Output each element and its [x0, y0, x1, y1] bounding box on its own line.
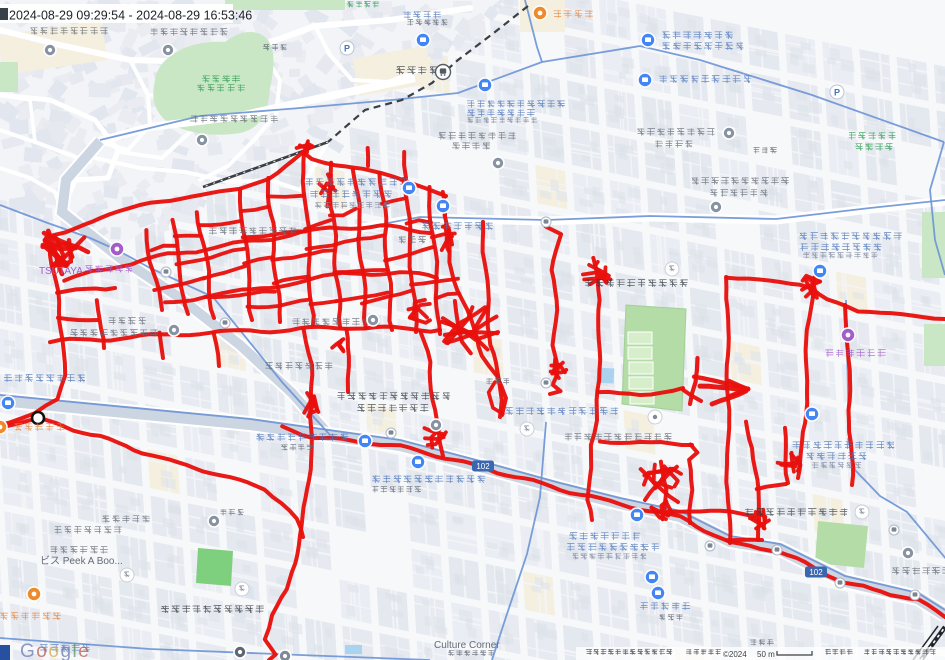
- svg-text:102: 102: [476, 462, 490, 471]
- svg-text:TSUTAYA: TSUTAYA: [39, 266, 83, 277]
- svg-text:Culture Corner: Culture Corner: [434, 640, 500, 651]
- svg-text:P: P: [344, 44, 350, 54]
- svg-text:Google: Google: [20, 641, 90, 660]
- svg-text:102: 102: [809, 568, 823, 577]
- svg-text:2024-08-29 09:29:54 - 2024-08-: 2024-08-29 09:29:54 - 2024-08-29 16:53:4…: [9, 9, 252, 23]
- svg-text:50 m: 50 m: [757, 650, 775, 659]
- svg-text:©2024: ©2024: [723, 650, 747, 659]
- svg-text:ビス Peek A Boo...: ビス Peek A Boo...: [40, 555, 123, 567]
- svg-text:P: P: [834, 88, 840, 98]
